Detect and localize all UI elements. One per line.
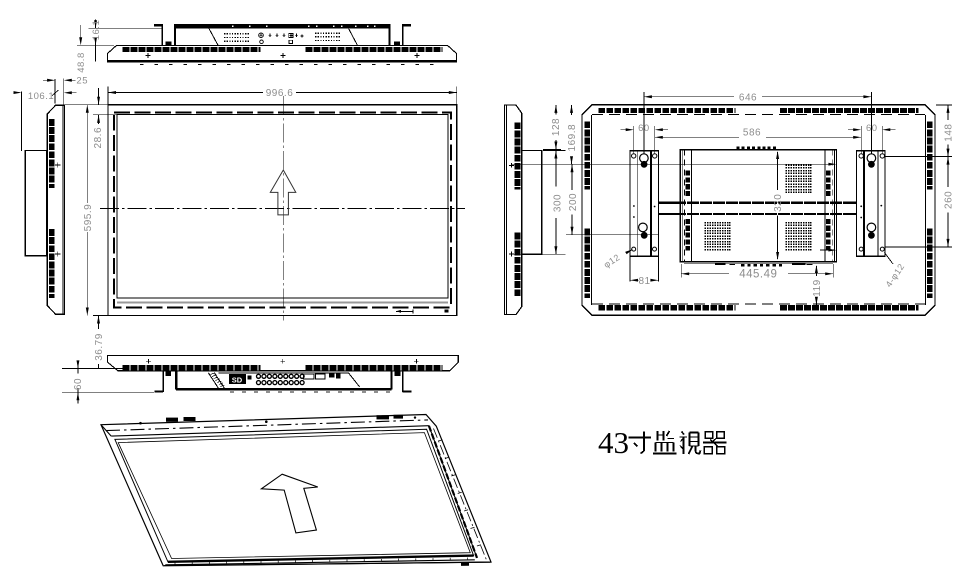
svg-text:148: 148 (944, 124, 955, 142)
svg-text:595.9: 595.9 (83, 204, 94, 232)
svg-text:25: 25 (76, 76, 88, 87)
svg-text:445.49: 445.49 (739, 269, 777, 281)
svg-text:586: 586 (743, 128, 761, 139)
svg-text:119: 119 (812, 279, 823, 296)
svg-text:300: 300 (553, 194, 564, 212)
svg-text:48.8: 48.8 (76, 52, 87, 73)
svg-text:60: 60 (866, 123, 878, 134)
svg-text:996.6: 996.6 (266, 88, 294, 99)
svg-text:200: 200 (568, 193, 579, 211)
svg-text:106.1: 106.1 (28, 91, 54, 102)
svg-text:SD: SD (232, 375, 243, 384)
svg-text:60: 60 (638, 123, 650, 134)
svg-text:260: 260 (944, 191, 955, 209)
svg-text:43: 43 (598, 425, 629, 460)
svg-text:28.6: 28.6 (93, 127, 104, 148)
svg-text:60: 60 (73, 378, 84, 390)
svg-text:169.8: 169.8 (567, 124, 578, 152)
svg-text:128: 128 (551, 118, 562, 136)
svg-text:81: 81 (638, 276, 650, 287)
svg-text:16.1: 16.1 (91, 20, 102, 41)
svg-text:36.79: 36.79 (94, 333, 105, 361)
svg-text:320: 320 (773, 194, 784, 212)
svg-text:646: 646 (739, 92, 757, 103)
